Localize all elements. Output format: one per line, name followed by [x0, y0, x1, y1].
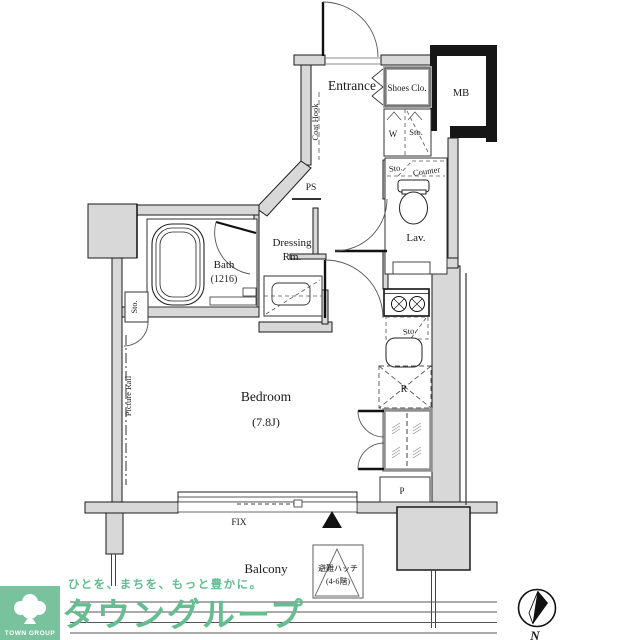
pillar-bottom-left [106, 513, 123, 554]
stove-icon [384, 289, 429, 316]
wall-entrance-left [294, 55, 325, 65]
escape-hatch-floors: (4-6階) [326, 576, 350, 586]
bath-label: Bath [214, 259, 235, 271]
logo-text: TOWN GROUP [0, 630, 60, 637]
closet-door-arcs [358, 411, 384, 469]
wall-right-upper [448, 138, 458, 266]
kitchen [358, 289, 431, 502]
wall-left [112, 258, 122, 504]
ps-label: PS [306, 183, 317, 193]
north-label: N [529, 628, 540, 640]
floor-plan-page: 避難ハッチ (4-6階) N Entrance Coat Hook Shoes … [0, 0, 640, 640]
picture-rail-label: Picture Rail [123, 375, 133, 416]
bath-sto-door-arc [124, 322, 148, 346]
pipe-box [380, 477, 430, 502]
wall-mb-bottom [450, 126, 497, 138]
toilet-icon [398, 180, 429, 224]
bedroom-size-label: (7.8J) [252, 415, 280, 429]
closet [358, 410, 431, 470]
entry-sto-label: Sto. [409, 127, 422, 137]
pillar-top-left [88, 204, 137, 258]
fix-label: FIX [231, 518, 246, 528]
wall-dressing-bottom [259, 322, 332, 332]
pillar-bottom-right [397, 507, 470, 570]
pipe-label: P [399, 486, 404, 496]
kitchen-sto-label: Sto. [402, 325, 417, 337]
shoes-closet-label: Shoes Clo. [387, 83, 426, 93]
lav-label: Lav. [406, 232, 425, 244]
balcony-label: Balcony [244, 561, 288, 576]
kitchen-sink-icon [386, 338, 422, 367]
escape-hatch-label: 避難ハッチ [318, 563, 358, 573]
wall-dressing-corridor [313, 208, 318, 257]
escape-hatch: 避難ハッチ (4-6階) [313, 545, 363, 598]
washer-pan-icon [264, 276, 322, 316]
north-arrow-icon: N [519, 590, 556, 640]
bath-sto-label: Sto. [130, 301, 139, 314]
wall-right-lower [432, 266, 460, 506]
bedroom-door-arc [325, 260, 383, 318]
bath-counter [243, 288, 256, 296]
dressing-label-1: Dressing [272, 237, 312, 249]
floor-plan: 避難ハッチ (4-6階) N Entrance Coat Hook Shoes … [0, 0, 640, 640]
wall-diagonal-ps [256, 161, 311, 216]
wall-bath-top [134, 205, 259, 215]
window-lock [294, 500, 302, 507]
toilet-bowl [400, 192, 428, 224]
brand-name: タウングループ [62, 588, 305, 636]
bath-size-label: (1216) [211, 274, 238, 285]
wall-bottom-left [85, 502, 178, 513]
entrance-door-arc [323, 2, 378, 57]
washer-label: W [389, 129, 398, 139]
bedroom-label: Bedroom [241, 389, 292, 404]
fix-window [178, 492, 357, 512]
town-group-logo: TOWN GROUP [0, 586, 60, 640]
entrance-label: Entrance [328, 78, 376, 93]
fridge-label: R [401, 384, 408, 395]
lav-door-arc [335, 199, 387, 251]
lav-cabinet [393, 262, 430, 274]
wall-entrance-right [381, 55, 431, 65]
meter-box-label: MB [453, 88, 469, 99]
hall-doors [325, 199, 387, 318]
lav-sto-label: Sto. [388, 162, 403, 174]
entry-triangle-marker [322, 511, 342, 528]
coat-hook-label: Coat Hook [310, 103, 320, 141]
bath-step [210, 297, 256, 305]
dressing-label-2: Rm. [283, 251, 302, 263]
